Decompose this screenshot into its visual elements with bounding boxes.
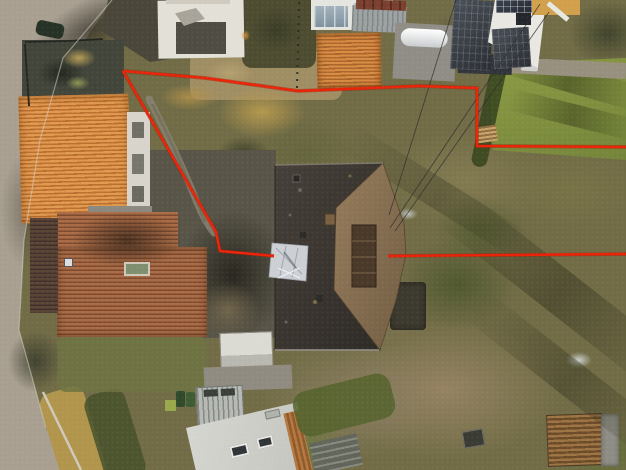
aerial-photo-canvas xyxy=(0,0,626,470)
photo-grain xyxy=(0,0,626,470)
